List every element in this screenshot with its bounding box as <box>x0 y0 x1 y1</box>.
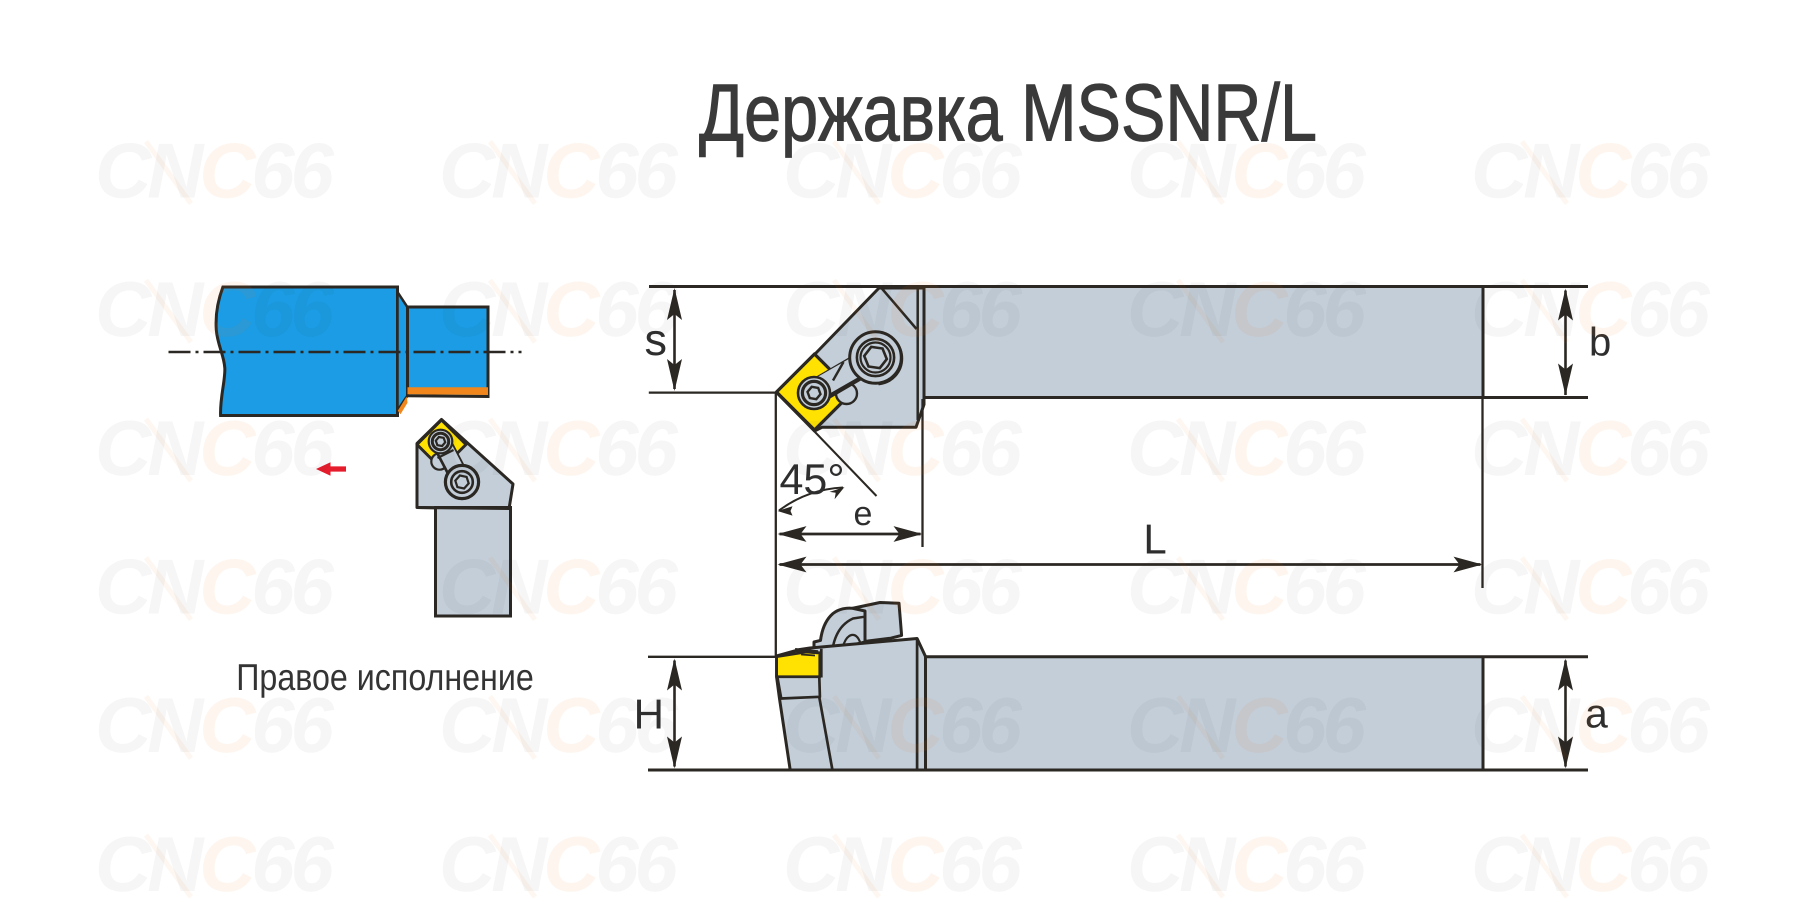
svg-text:C: C <box>199 126 257 214</box>
svg-text:66: 66 <box>251 265 334 353</box>
svg-text:C: C <box>887 265 945 353</box>
svg-text:66: 66 <box>595 543 678 631</box>
svg-text:66: 66 <box>1283 265 1366 353</box>
svg-text:66: 66 <box>595 820 678 908</box>
svg-text:66: 66 <box>1627 681 1710 769</box>
svg-text:66: 66 <box>595 404 678 492</box>
svg-text:C: C <box>199 404 257 492</box>
svg-text:C: C <box>199 543 257 631</box>
svg-text:C: C <box>1575 404 1633 492</box>
svg-text:C: C <box>1231 681 1289 769</box>
svg-text:e: e <box>854 495 873 533</box>
svg-text:66: 66 <box>1283 543 1366 631</box>
svg-text:66: 66 <box>1283 404 1366 492</box>
svg-text:C: C <box>887 820 945 908</box>
svg-text:66: 66 <box>1283 681 1366 769</box>
svg-text:66: 66 <box>939 820 1022 908</box>
svg-text:C: C <box>1575 126 1633 214</box>
svg-text:C: C <box>1575 543 1633 631</box>
svg-text:66: 66 <box>939 126 1022 214</box>
svg-text:66: 66 <box>939 265 1022 353</box>
svg-text:C: C <box>887 404 945 492</box>
svg-text:C: C <box>1231 543 1289 631</box>
svg-text:66: 66 <box>1627 265 1710 353</box>
svg-text:C: C <box>543 681 601 769</box>
svg-text:66: 66 <box>1283 820 1366 908</box>
svg-text:C: C <box>543 543 601 631</box>
svg-text:66: 66 <box>1627 543 1710 631</box>
svg-text:C: C <box>887 543 945 631</box>
svg-text:66: 66 <box>595 681 678 769</box>
svg-text:66: 66 <box>251 543 334 631</box>
svg-text:C: C <box>1231 126 1289 214</box>
svg-text:66: 66 <box>595 265 678 353</box>
svg-text:66: 66 <box>939 543 1022 631</box>
svg-text:66: 66 <box>1283 126 1366 214</box>
svg-text:66: 66 <box>595 126 678 214</box>
svg-text:C: C <box>1231 265 1289 353</box>
svg-text:C: C <box>199 265 257 353</box>
svg-text:66: 66 <box>939 681 1022 769</box>
svg-text:C: C <box>199 681 257 769</box>
svg-text:C: C <box>543 404 601 492</box>
svg-text:66: 66 <box>939 404 1022 492</box>
svg-text:66: 66 <box>1627 404 1710 492</box>
svg-text:66: 66 <box>1627 126 1710 214</box>
svg-text:66: 66 <box>251 681 334 769</box>
svg-text:66: 66 <box>251 820 334 908</box>
svg-text:C: C <box>1575 265 1633 353</box>
svg-text:C: C <box>543 126 601 214</box>
svg-text:C: C <box>543 265 601 353</box>
svg-text:C: C <box>199 820 257 908</box>
svg-text:C: C <box>1231 820 1289 908</box>
svg-text:C: C <box>1231 404 1289 492</box>
svg-text:66: 66 <box>251 126 334 214</box>
svg-text:66: 66 <box>1627 820 1710 908</box>
svg-text:C: C <box>1575 820 1633 908</box>
svg-text:C: C <box>887 126 945 214</box>
svg-text:C: C <box>543 820 601 908</box>
svg-text:C: C <box>887 681 945 769</box>
svg-text:C: C <box>1575 681 1633 769</box>
svg-text:66: 66 <box>251 404 334 492</box>
